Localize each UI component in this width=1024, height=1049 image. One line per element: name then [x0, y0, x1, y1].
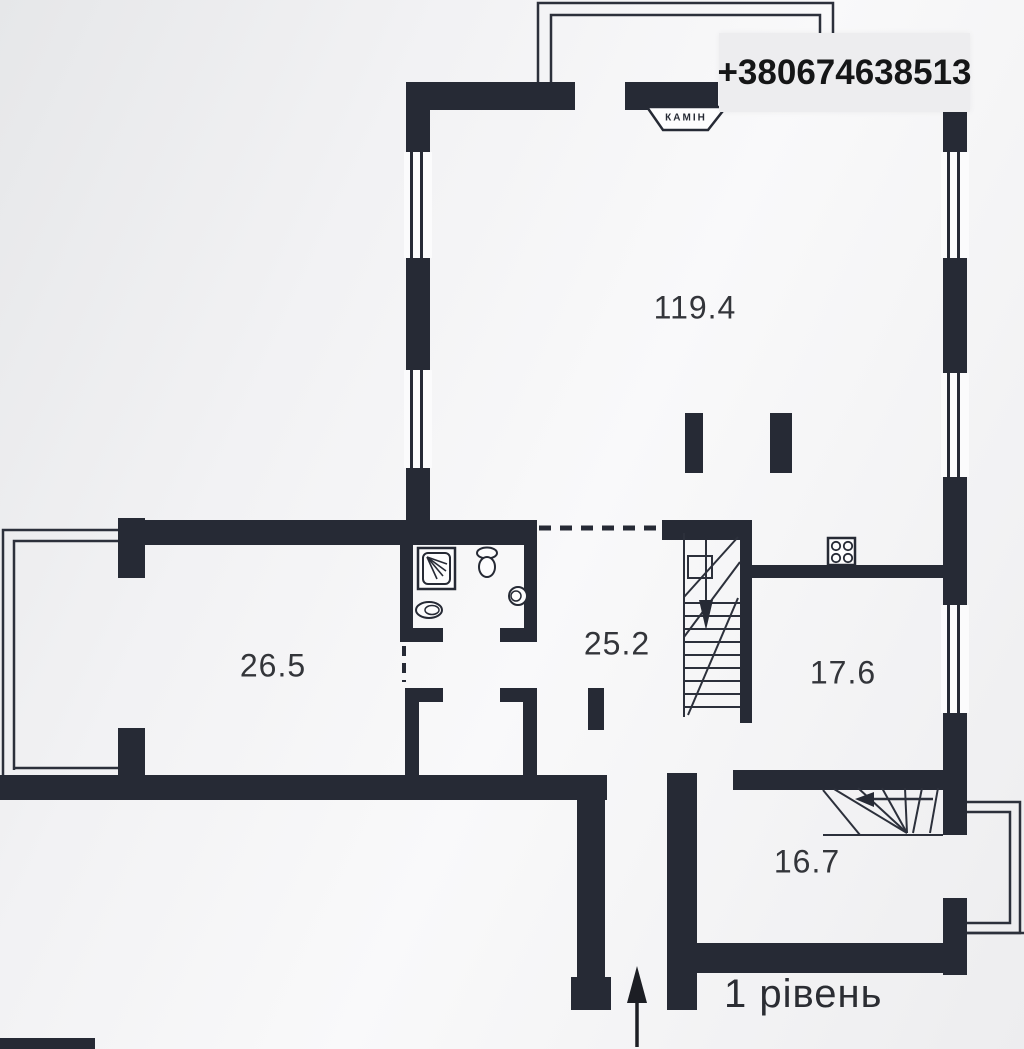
- area-label-living-room: 119.4: [654, 290, 737, 327]
- wall: [943, 258, 967, 373]
- wall: [406, 82, 575, 110]
- window-icon: [941, 152, 969, 258]
- wall: [0, 1038, 95, 1049]
- toilet-icon: [477, 548, 497, 578]
- wall: [123, 520, 537, 545]
- wall: [662, 520, 752, 540]
- wall: [943, 713, 967, 835]
- wall: [667, 773, 697, 1010]
- window-icon: [941, 373, 969, 477]
- wall: [0, 775, 607, 800]
- wall: [400, 628, 443, 642]
- entrance-arrow-icon: [627, 966, 647, 1047]
- area-label-room-bottom: 16.7: [774, 844, 840, 881]
- window-icon: [941, 605, 969, 713]
- balcony-railing-left: [3, 530, 120, 776]
- stove-icon: [828, 538, 855, 565]
- pillar: [770, 413, 792, 473]
- winder-staircase-icon: [823, 788, 943, 835]
- area-label-room-left: 26.5: [240, 648, 306, 685]
- sink-icon: [509, 587, 527, 605]
- floor-plan-drawing: [0, 0, 1024, 1049]
- wall: [943, 106, 967, 152]
- area-label-kitchen: 17.6: [810, 655, 876, 692]
- floor-plan-page: 119.4 26.5 25.2 17.6 16.7 КАМІН 1 рівень…: [0, 0, 1024, 1049]
- wall: [500, 688, 537, 702]
- wall: [400, 545, 413, 642]
- wall: [733, 770, 943, 790]
- shower-icon: [418, 548, 455, 589]
- wall: [405, 688, 443, 702]
- wall: [571, 977, 611, 1010]
- window-icon: [404, 370, 432, 468]
- wall: [118, 518, 145, 578]
- window-icon: [404, 152, 432, 258]
- wall: [740, 520, 752, 723]
- wall: [406, 82, 430, 152]
- fireplace-label: КАМІН: [665, 113, 707, 124]
- pillar: [685, 413, 703, 473]
- area-label-hallway: 25.2: [584, 626, 650, 663]
- wall: [405, 702, 419, 777]
- wall: [752, 565, 943, 578]
- wall: [118, 728, 145, 777]
- phone-number-banner: +380674638513: [719, 33, 970, 112]
- level-label: 1 рівень: [724, 972, 882, 1017]
- wall: [943, 477, 967, 605]
- washbasin-icon: [416, 602, 442, 618]
- wall: [523, 702, 537, 777]
- wall: [577, 800, 605, 987]
- balcony-railing-right: [967, 802, 1024, 933]
- wall: [406, 258, 430, 370]
- main-staircase-icon: [684, 533, 740, 717]
- wall: [697, 943, 967, 973]
- pillar: [588, 688, 604, 730]
